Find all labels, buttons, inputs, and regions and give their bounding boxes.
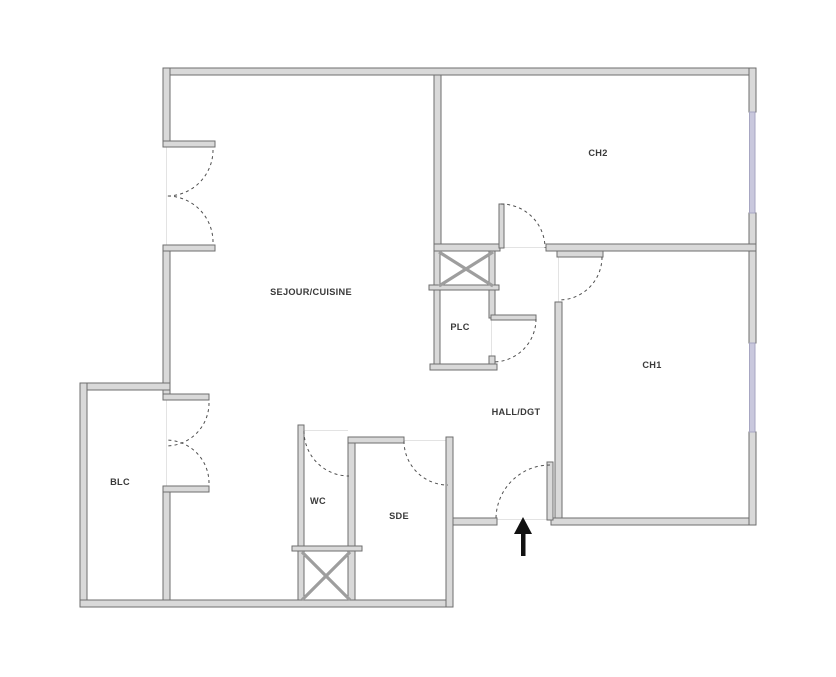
wall-bottom-step: [453, 518, 497, 525]
door-swing-arc: [304, 431, 349, 476]
entrance-door: [496, 462, 553, 520]
door-leaf: [499, 204, 504, 248]
wall-east-3: [749, 432, 756, 525]
entrance-arrow: [514, 517, 532, 556]
room-label-wc: WC: [310, 496, 326, 506]
wall-west-upper: [163, 68, 170, 141]
wall-east-1: [749, 68, 756, 112]
wall-plc-south: [430, 364, 497, 370]
door-leaf: [491, 315, 536, 320]
wall-sejour-ch2: [434, 75, 441, 251]
wall-east-2: [749, 213, 756, 343]
wall-blc-top: [80, 383, 170, 390]
wall-bottom-right: [551, 518, 756, 525]
door-swing-arc: [493, 319, 536, 362]
door-ch2: [499, 204, 545, 248]
wall-wc-west: [298, 425, 304, 600]
wall-sde-east: [446, 437, 453, 607]
window-ch2-east: [750, 112, 756, 213]
room-label-sejour: SEJOUR/CUISINE: [270, 287, 352, 297]
shaft-side: [489, 251, 495, 287]
entrance-arrow-shaft: [521, 532, 526, 556]
room-label-hall: HALL/DGT: [492, 407, 541, 417]
door-swing-arc: [166, 440, 209, 483]
wall-blc-west: [80, 383, 87, 607]
wall-plc-west: [434, 251, 440, 370]
door-leaf: [163, 245, 215, 251]
door-thresholds: [167, 147, 559, 520]
room-label-plc: PLC: [450, 322, 469, 332]
wall-ch2-south-left: [434, 244, 500, 251]
door-swing-arc: [496, 465, 550, 519]
door-leaf: [163, 486, 209, 492]
room-label-ch2: CH2: [588, 148, 607, 158]
window-ch1-east: [750, 343, 756, 432]
door-swing-arc: [501, 204, 545, 248]
door-ch1: [557, 251, 603, 300]
room-label-sde: SDE: [389, 511, 409, 521]
wall-west-mid: [163, 251, 170, 398]
wall-top: [163, 68, 756, 75]
wall-bottom-left: [80, 600, 453, 607]
door-swing-arc: [559, 257, 602, 300]
wall-wc-sde: [348, 437, 355, 600]
wall-west-lower: [163, 486, 170, 602]
door-sde: [404, 441, 448, 485]
door-leaf: [163, 141, 215, 147]
french-door-blc: [163, 394, 209, 492]
door-leaf: [547, 462, 553, 520]
shaft-base: [292, 546, 362, 551]
door-swing-arc: [167, 196, 213, 242]
room-label-blc: BLC: [110, 477, 130, 487]
wall-sde-north: [348, 437, 404, 443]
door-leaf: [163, 394, 209, 400]
wall-ch1-west: [555, 302, 562, 518]
wall-ch2-south-right: [546, 244, 756, 251]
door-wc: [304, 431, 349, 476]
floor-plan-drawing: SEJOUR/CUISINE CH2 CH1 PLC HALL/DGT BLC …: [0, 0, 836, 677]
french-door-sejour-west: [163, 141, 215, 251]
floor-plan-page: SEJOUR/CUISINE CH2 CH1 PLC HALL/DGT BLC …: [0, 0, 836, 677]
door-swing-arc: [166, 403, 209, 446]
room-label-ch1: CH1: [642, 360, 661, 370]
door-swing-arc: [167, 150, 213, 196]
door-leaf: [557, 251, 603, 257]
outer-walls: [80, 68, 756, 607]
door-plc: [491, 315, 536, 362]
door-swing-arc: [404, 441, 448, 485]
